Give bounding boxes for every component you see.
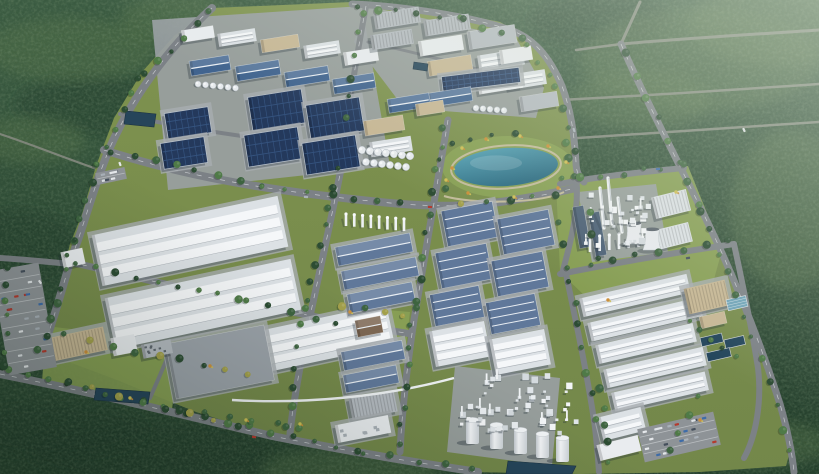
atmosphere (0, 0, 819, 474)
aerial-render (0, 0, 819, 474)
render-canvas (0, 0, 819, 474)
aerial-industrial-park-rendering (0, 0, 819, 474)
sunlight-haze (0, 0, 819, 474)
